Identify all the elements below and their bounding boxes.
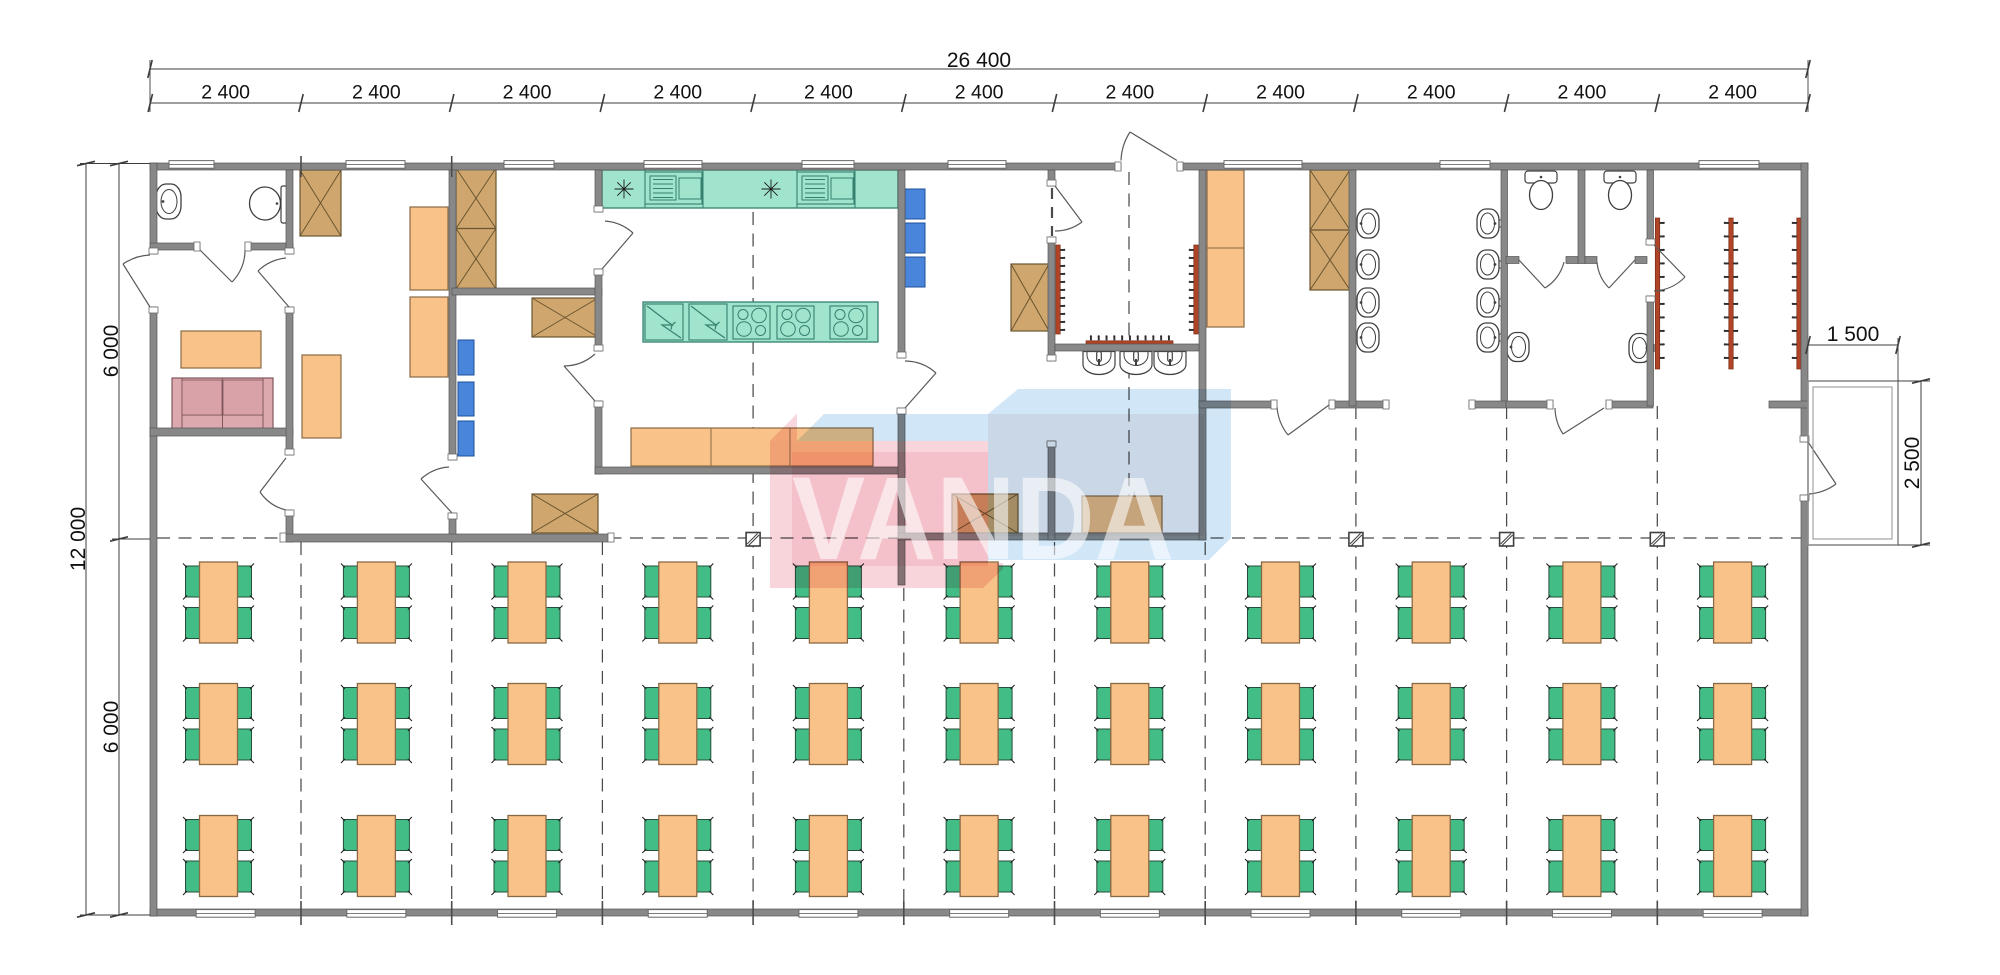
svg-text:VANDA: VANDA — [792, 453, 1174, 585]
svg-text:2 400: 2 400 — [1105, 82, 1154, 104]
svg-text:12 000: 12 000 — [67, 507, 90, 571]
svg-text:2 400: 2 400 — [201, 82, 250, 104]
svg-text:2 400: 2 400 — [1708, 82, 1757, 104]
svg-text:2 400: 2 400 — [503, 82, 552, 104]
svg-text:26 400: 26 400 — [947, 49, 1011, 72]
svg-text:6 000: 6 000 — [100, 325, 123, 378]
svg-text:2 500: 2 500 — [1901, 437, 1924, 490]
svg-text:1 500: 1 500 — [1827, 323, 1880, 346]
svg-text:2 400: 2 400 — [955, 82, 1004, 104]
svg-text:2 400: 2 400 — [352, 82, 401, 104]
svg-text:2 400: 2 400 — [1256, 82, 1305, 104]
svg-text:2 400: 2 400 — [1407, 82, 1456, 104]
svg-text:2 400: 2 400 — [1558, 82, 1607, 104]
svg-text:6 000: 6 000 — [100, 701, 123, 754]
svg-text:2 400: 2 400 — [653, 82, 702, 104]
svg-text:2 400: 2 400 — [804, 82, 853, 104]
